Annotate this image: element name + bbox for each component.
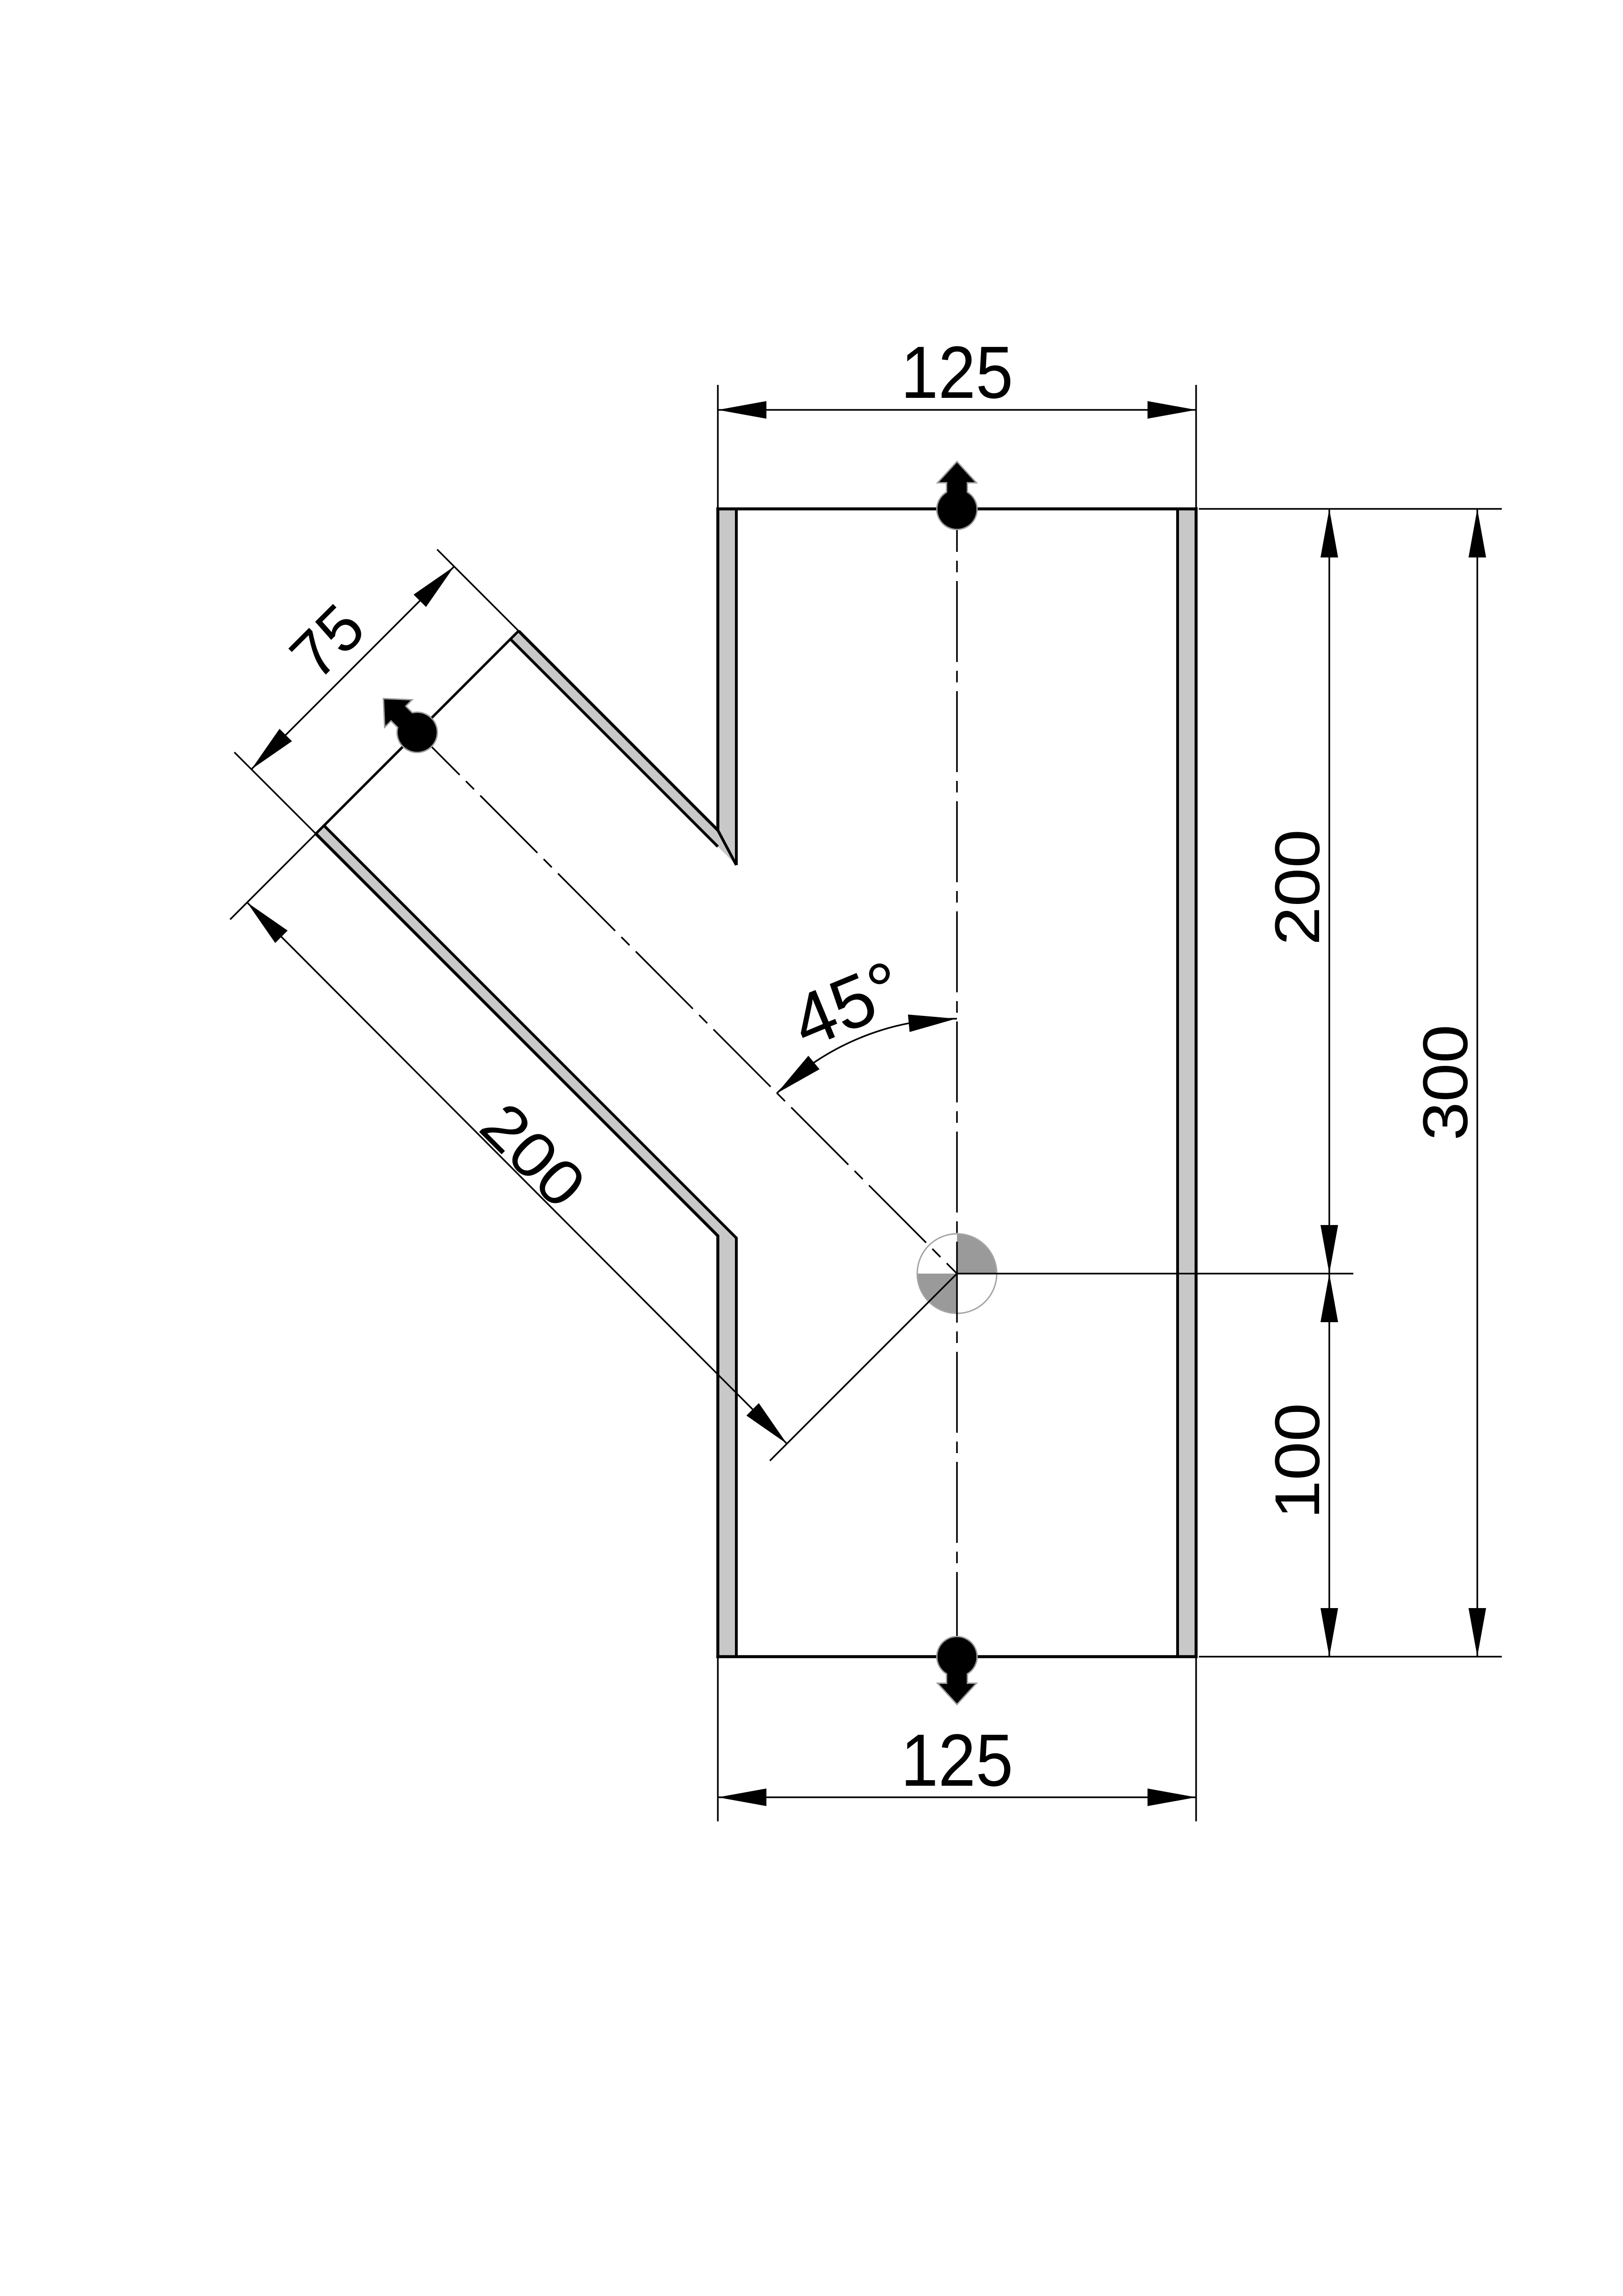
- svg-text:300: 300: [1410, 1025, 1481, 1141]
- svg-text:200: 200: [1262, 829, 1333, 946]
- svg-text:100: 100: [1262, 1403, 1333, 1519]
- svg-text:125: 125: [901, 331, 1013, 414]
- svg-text:125: 125: [901, 1719, 1013, 1801]
